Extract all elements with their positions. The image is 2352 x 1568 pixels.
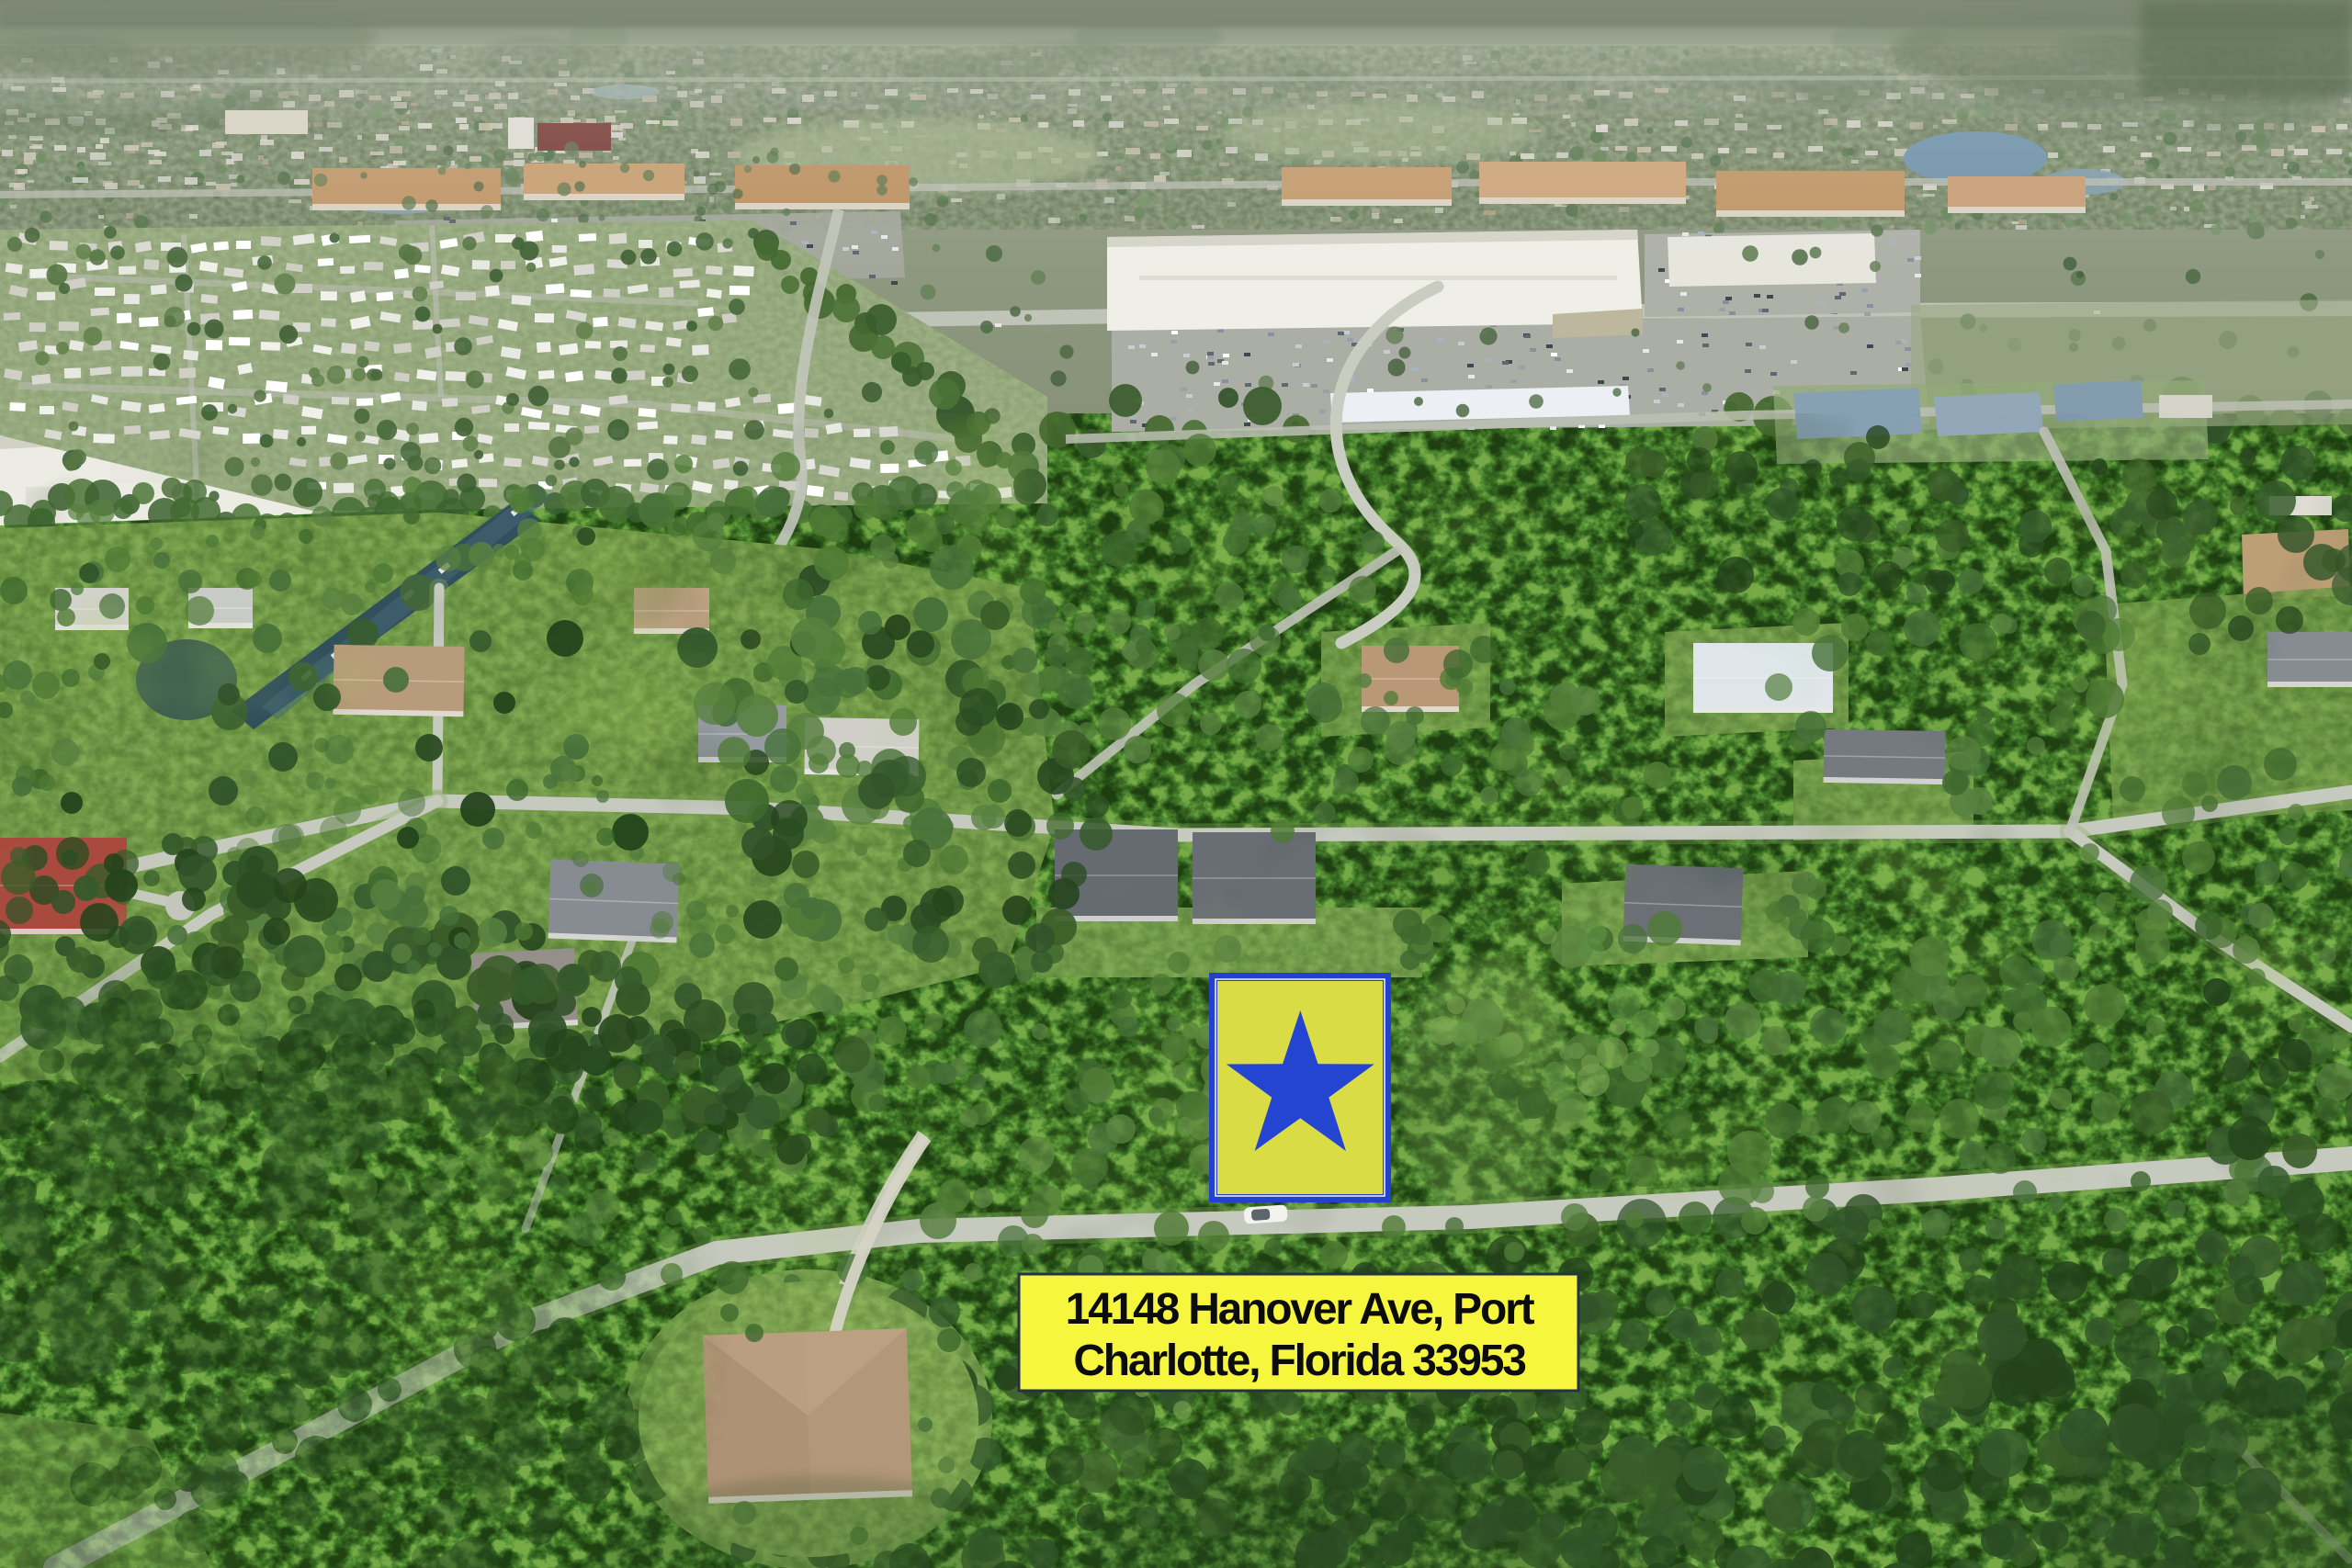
svg-text:14148 Hanover Ave, Port: 14148 Hanover Ave, Port: [1066, 1285, 1535, 1334]
svg-text:Charlotte, Florida 33953: Charlotte, Florida 33953: [1073, 1337, 1525, 1385]
